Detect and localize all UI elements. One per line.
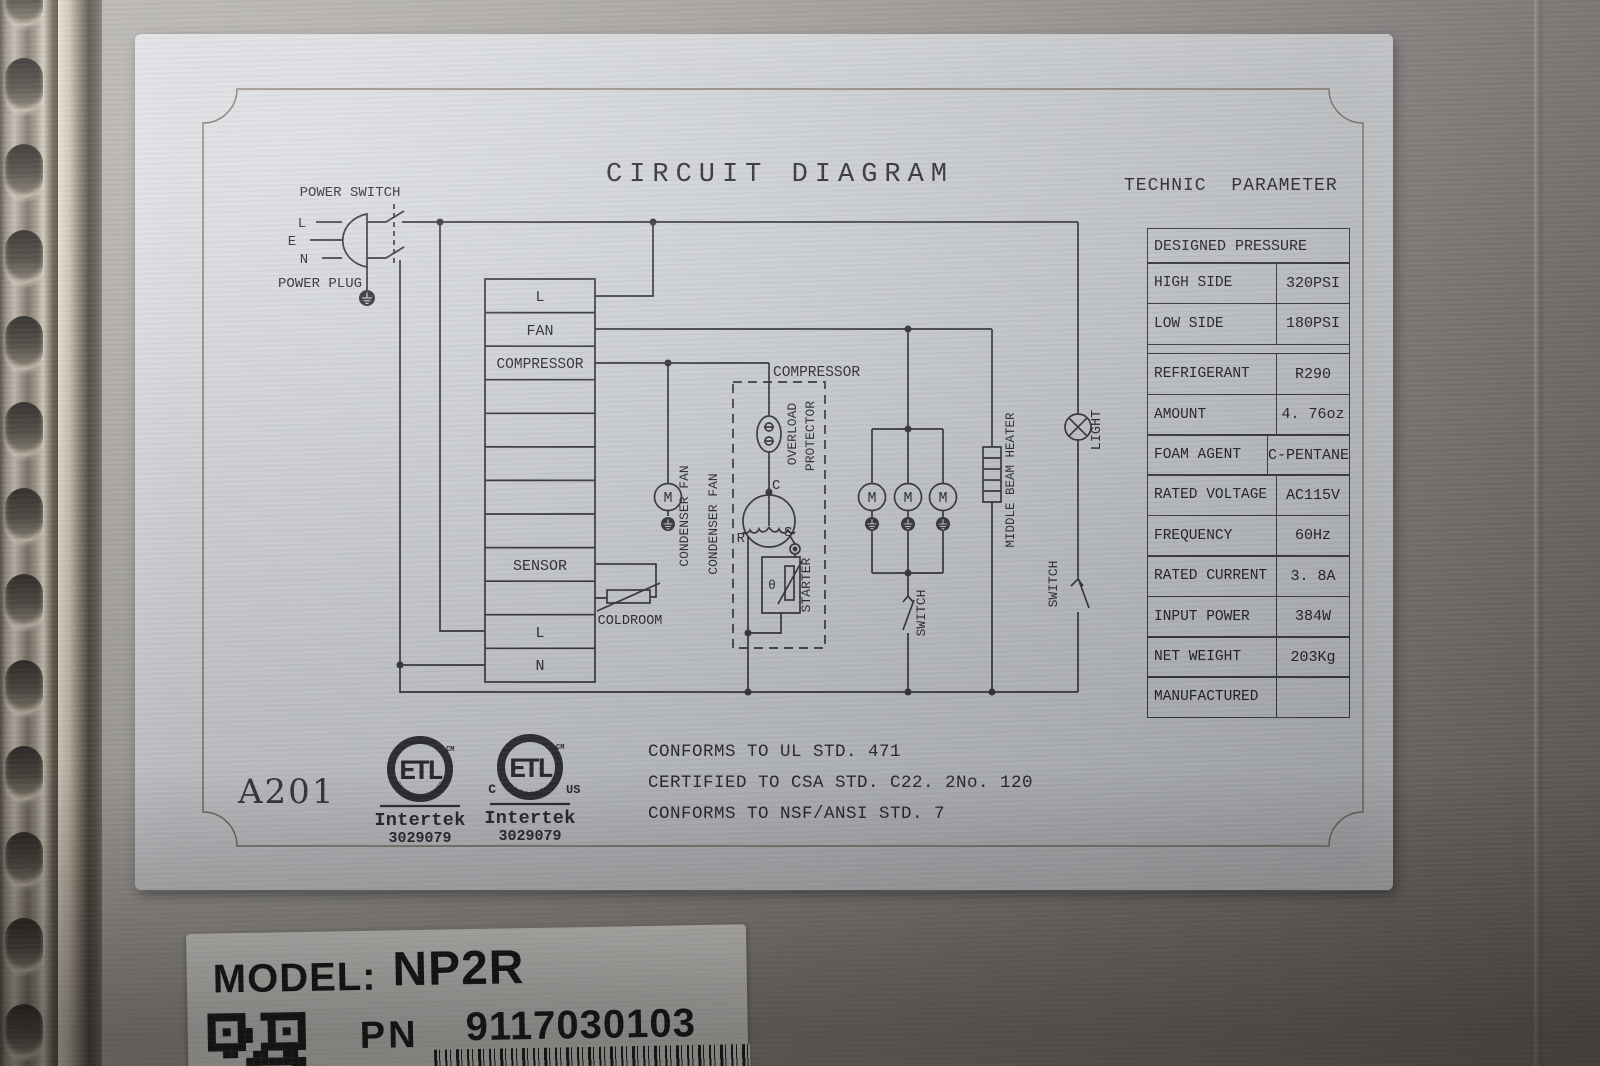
label-code: A201 <box>238 772 335 812</box>
technic-parameter-table: DESIGNED PRESSURE HIGH SIDE320PSILOW SID… <box>1147 228 1350 718</box>
table-row: NET WEIGHT203Kg <box>1147 636 1350 678</box>
compliance-statements: CONFORMS TO UL STD. 471 CERTIFIED TO CSA… <box>648 737 1033 830</box>
table-row: INPUT POWER384W <box>1147 596 1350 638</box>
table-row: REFRIGERANTR290 <box>1147 353 1350 395</box>
table-row-value: 320PSI <box>1277 263 1349 303</box>
vent-slot <box>5 746 43 800</box>
table-row-label: INPUT POWER <box>1148 597 1277 637</box>
vent-slot <box>5 918 43 972</box>
door-vent-strip <box>0 0 60 1066</box>
table-row-value <box>1277 677 1349 717</box>
compliance-line: CONFORMS TO NSF/ANSI STD. 7 <box>648 799 1033 830</box>
table-row: LOW SIDE180PSI <box>1147 303 1350 345</box>
table-row: FREQUENCY60Hz <box>1147 515 1350 557</box>
table-row-label: AMOUNT <box>1148 395 1277 435</box>
vent-slot <box>5 316 43 370</box>
door-hinge-ridge <box>58 0 102 1066</box>
table-row-label: RATED CURRENT <box>1148 556 1277 596</box>
vent-slot <box>5 402 43 456</box>
table-row: AMOUNT4. 76oz <box>1147 394 1350 436</box>
model-row: MODEL:NP2R <box>212 944 525 1004</box>
table-row: FOAM AGENTC-PENTANE <box>1147 434 1350 476</box>
table-row-label: RATED VOLTAGE <box>1148 475 1277 515</box>
table-row-value: 3. 8A <box>1277 556 1349 596</box>
vent-slot <box>5 488 43 542</box>
table-row-label: MANUFACTURED <box>1148 677 1277 717</box>
table-section-header: DESIGNED PRESSURE <box>1147 228 1350 264</box>
photo-of-appliance-label: POWER SWITCH L E N POWER PLUG L FAN COMP… <box>0 0 1600 1066</box>
model-value: NP2R <box>392 941 525 996</box>
panel-seam <box>1534 0 1544 1066</box>
compliance-line: CERTIFIED TO CSA STD. C22. 2No. 120 <box>648 768 1033 799</box>
table-section-gap <box>1147 343 1350 353</box>
circuit-diagram-title: CIRCUIT DIAGRAM <box>600 160 960 190</box>
table-row-label: FOAM AGENT <box>1148 435 1268 475</box>
compliance-line: CONFORMS TO UL STD. 471 <box>648 737 1033 768</box>
model-sticker: MODEL:NP2R PN 9117030103 <box>186 924 750 1066</box>
vent-slot <box>5 58 43 112</box>
pn-label: PN <box>359 1014 419 1058</box>
table-row: RATED CURRENT3. 8A <box>1147 555 1350 597</box>
model-label: MODEL: <box>212 955 377 1002</box>
vent-slot <box>5 230 43 284</box>
vent-slot <box>5 832 43 886</box>
table-row-value: 203Kg <box>1277 637 1349 677</box>
technic-parameter-title: TECHNIC PARAMETER <box>1124 176 1364 196</box>
vent-slot <box>5 0 43 26</box>
qr-code <box>207 1012 307 1066</box>
vent-slot <box>5 144 43 198</box>
table-row-value: 60Hz <box>1277 516 1349 556</box>
table-row-value: C-PENTANE <box>1268 435 1349 475</box>
table-row-value: 4. 76oz <box>1277 395 1349 435</box>
pn-value: 9117030103 <box>465 1001 696 1050</box>
vent-slot <box>5 574 43 628</box>
table-row-value: 180PSI <box>1277 304 1349 344</box>
table-row-label: FREQUENCY <box>1148 516 1277 556</box>
table-row-label: HIGH SIDE <box>1148 263 1277 303</box>
table-row-value: AC115V <box>1277 475 1349 515</box>
table-row-value: R290 <box>1277 354 1349 394</box>
table-row-label: REFRIGERANT <box>1148 354 1277 394</box>
table-row: MANUFACTURED <box>1147 676 1350 718</box>
table-row: RATED VOLTAGEAC115V <box>1147 474 1350 516</box>
vent-slot <box>5 1004 43 1058</box>
table-row-label: LOW SIDE <box>1148 304 1277 344</box>
table-row-value: 384W <box>1277 597 1349 637</box>
table-row-label: NET WEIGHT <box>1148 637 1277 677</box>
vent-slot <box>5 660 43 714</box>
table-row: HIGH SIDE320PSI <box>1147 262 1350 304</box>
